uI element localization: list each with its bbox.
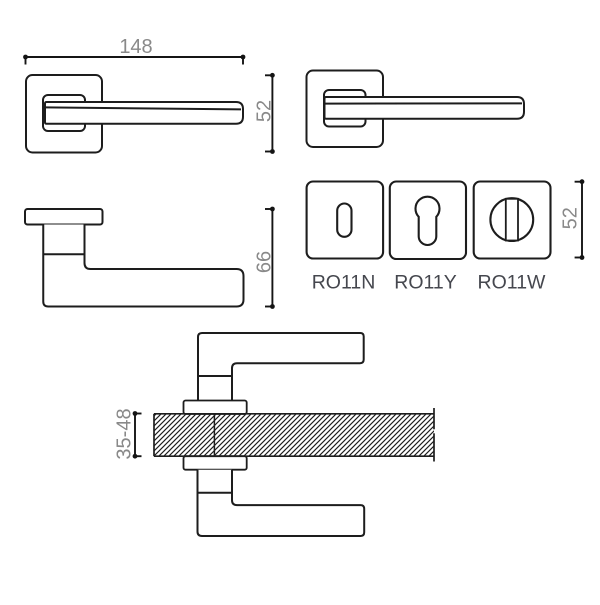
svg-text:RO11W: RO11W <box>478 272 546 294</box>
svg-text:35-48: 35-48 <box>114 408 136 459</box>
svg-text:66: 66 <box>254 251 276 273</box>
svg-text:RO11N: RO11N <box>312 272 376 294</box>
svg-text:52: 52 <box>560 207 582 229</box>
svg-text:RO11Y: RO11Y <box>394 272 457 294</box>
svg-text:52: 52 <box>253 100 275 122</box>
svg-text:148: 148 <box>119 36 152 58</box>
